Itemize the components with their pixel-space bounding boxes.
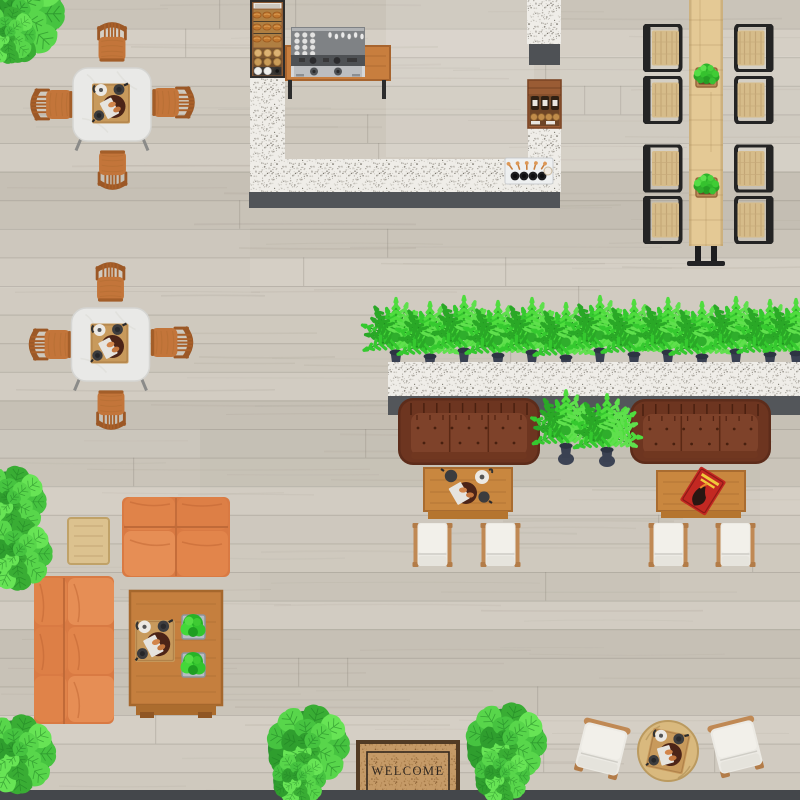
svg-text:WELCOME: WELCOME <box>372 764 445 778</box>
